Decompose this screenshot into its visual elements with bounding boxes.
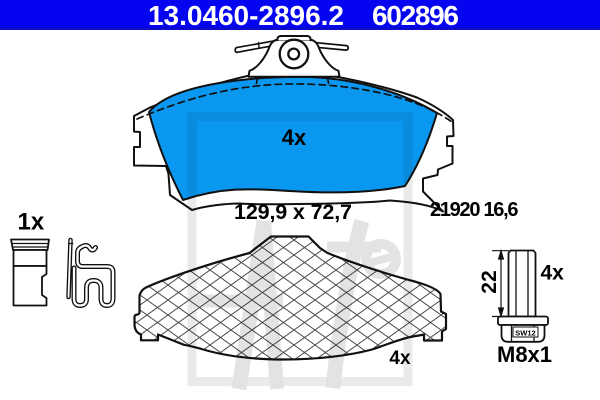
svg-text:1x: 1x bbox=[18, 209, 45, 236]
svg-text:21920 16,6: 21920 16,6 bbox=[430, 199, 519, 221]
svg-text:SW12: SW12 bbox=[515, 329, 535, 338]
svg-text:22: 22 bbox=[478, 270, 501, 293]
svg-text:602896: 602896 bbox=[372, 0, 459, 31]
svg-text:4x: 4x bbox=[282, 125, 307, 150]
svg-text:13.0460-2896.2: 13.0460-2896.2 bbox=[148, 0, 344, 31]
svg-text:129,9 x 72,7: 129,9 x 72,7 bbox=[234, 200, 352, 224]
svg-text:4x: 4x bbox=[541, 262, 565, 285]
svg-text:M8x1: M8x1 bbox=[497, 342, 552, 367]
